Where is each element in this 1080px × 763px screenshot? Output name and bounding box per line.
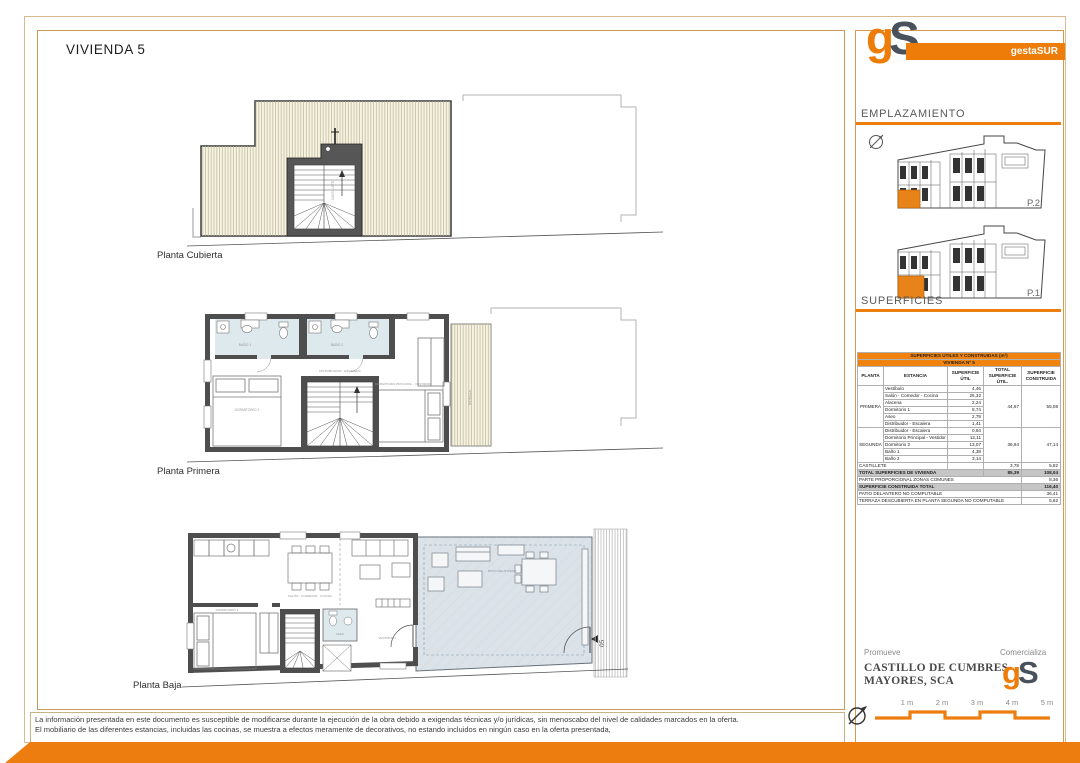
planta-primera-drawing: TERRAZA: [185, 298, 665, 468]
page-title: VIVIENDA 5: [66, 42, 146, 57]
planta-cubierta-drawing: CASTILLETE: [185, 88, 665, 258]
summary-row: SUPERFICIE CONSTRUIDA TOTAL 116,40: [858, 484, 1061, 491]
svg-text:1 m: 1 m: [901, 698, 914, 707]
dining: [288, 546, 332, 590]
siteplan-label-p1: P.1: [1027, 288, 1040, 299]
disclaimer-line-2: El mobiliario de las diferentes estancia…: [35, 725, 840, 735]
section-underline: [856, 122, 1061, 125]
bottom-accent-bar: [0, 742, 1080, 763]
footer-logo: gS: [1002, 655, 1039, 691]
highlighted-unit: [898, 190, 920, 208]
siteplan-label-p2: P.2: [1027, 198, 1040, 209]
summary-row: PATIO DELANTERO NO COMPUTABLE 36,41: [858, 491, 1061, 498]
living: [352, 540, 410, 607]
plan-label-cubierta: Planta Cubierta: [157, 250, 222, 261]
promueve-name: CASTILLO DE CUMBRES MAYORES, SCA: [864, 662, 1008, 688]
svg-text:5 m: 5 m: [1041, 698, 1054, 707]
areas-table: SUPERFICIES ÚTILES Y CONSTRUIDAS (m²) VI…: [857, 352, 1061, 505]
room-label-salon: SALÓN - COMEDOR - COCINA: [288, 593, 333, 598]
siteplan-p2: P.2: [862, 130, 1052, 215]
svg-text:2 m: 2 m: [936, 698, 949, 707]
plan-label-baja: Planta Baja: [133, 680, 182, 691]
room-label-patio: PATIO DELANTERO: [488, 569, 517, 573]
svg-text:BAÑO 1: BAÑO 1: [239, 342, 252, 347]
neighbor-outline: [491, 308, 636, 426]
table-subtitle: VIVIENDA Nº 5: [858, 360, 1061, 367]
disclaimer-box: La información presentada en este docume…: [30, 712, 845, 743]
summary-row: TOTAL SUPERFICIES DE VIVIENDA 85,39 108,…: [858, 470, 1061, 477]
table-title: SUPERFICIES ÚTILES Y CONSTRUIDAS (m²): [858, 353, 1061, 360]
room-row: SEGUNDA Distribuidor - Escalera0,64 36,9…: [858, 428, 1061, 435]
brand-name-bar: gestaSUR: [906, 43, 1065, 60]
neighbor-outline: [463, 95, 636, 222]
svg-text:3 m: 3 m: [971, 698, 984, 707]
street-hatch: [594, 529, 627, 677]
castillete-row: CASTILLETE 3,78 5,82: [858, 463, 1061, 470]
svg-text:4 m: 4 m: [1006, 698, 1019, 707]
svg-text:BAÑO 2: BAÑO 2: [331, 342, 344, 347]
aseo: [323, 609, 357, 641]
room-row: PRIMERA Vestíbulo4,46 44,67 55,08: [858, 386, 1061, 393]
scale-segments: [875, 712, 1050, 718]
scale-labels: 1 m 2 m 3 m 4 m 5 m: [901, 698, 1054, 707]
promueve-label: Promueve: [864, 648, 900, 657]
summary-row: PARTE PROPORCIONAL ZONAS COMUNES 8,36: [858, 477, 1061, 484]
plan-sheet: VIVIENDA 5: [0, 0, 1080, 763]
bedroom: [194, 613, 278, 669]
section-underline: [856, 309, 1061, 312]
scale-bar: 1 m 2 m 3 m 4 m 5 m: [845, 694, 1060, 730]
column-header-row: PLANTA ESTANCIA SUPERFICIE ÚTIL TOTAL SU…: [858, 367, 1061, 386]
room-label-terraza: TERRAZA: [468, 389, 472, 406]
room-label-dorm1: DORMITORIO 1: [216, 608, 239, 612]
siteplan-p1: P.1: [862, 218, 1052, 306]
disclaimer-line-1: La información presentada en este docume…: [35, 715, 840, 725]
kitchen: [194, 540, 269, 556]
stair-label: CASTILLETE: [331, 181, 335, 200]
svg-text:DORMITORIO 2: DORMITORIO 2: [235, 408, 260, 412]
section-heading-emplazamiento: EMPLAZAMIENTO: [861, 108, 965, 120]
svg-text:DISTRIBUIDOR - ESCALERA: DISTRIBUIDOR - ESCALERA: [319, 369, 361, 373]
section-heading-superficies: SUPERFICIES: [861, 295, 943, 307]
svg-text:DORMITORIO PRINCIPAL - VESTIDO: DORMITORIO PRINCIPAL - VESTIDOR: [375, 382, 431, 386]
plan-label-primera: Planta Primera: [157, 466, 220, 477]
room-label-aseo: ASEO: [336, 632, 345, 636]
summary-row: TERRAZA DESCUBIERTA EN PLANTA SEGUNDA NO…: [858, 498, 1061, 505]
planta-baja-drawing: PATIO DELANTERO 05: [180, 525, 640, 695]
logo-letter-s: S: [1018, 655, 1039, 690]
